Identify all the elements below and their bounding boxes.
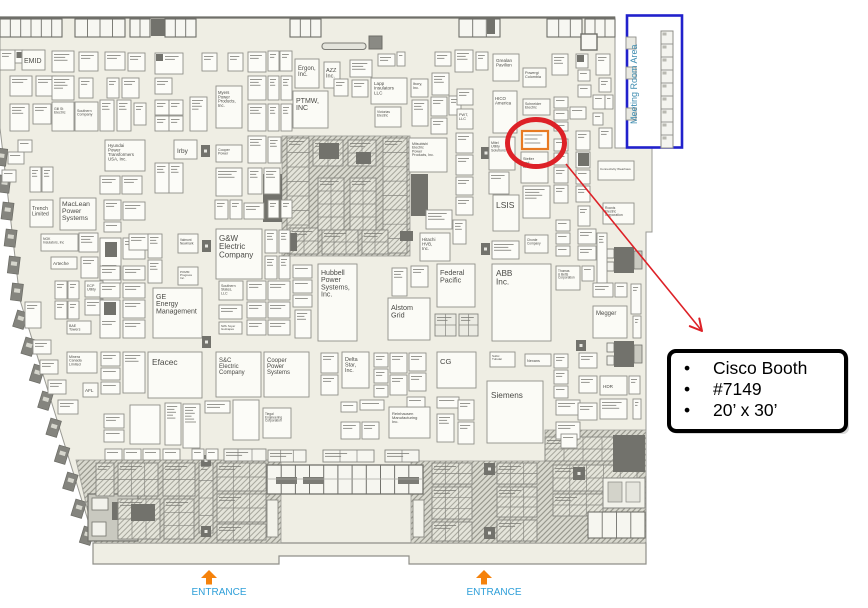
svg-text:HDR: HDR (603, 384, 614, 389)
svg-text:Megger: Megger (596, 311, 616, 317)
svg-text:Meeting Room Area: Meeting Room Area (629, 44, 639, 124)
svg-text:FederalPacific: FederalPacific (440, 268, 465, 284)
svg-text:Connectivity Wearhaus: Connectivity Wearhaus (600, 167, 631, 171)
svg-text:Efacec: Efacec (152, 357, 178, 367)
svg-text:CG: CG (440, 357, 451, 366)
svg-text:Siemens: Siemens (491, 391, 523, 400)
svg-text:AFL: AFL (85, 388, 94, 393)
svg-text:Arteche: Arteche (53, 261, 69, 266)
svg-text:NWL SoyerGodnapes: NWL SoyerGodnapes (221, 324, 235, 331)
svg-text:ENTRANCE: ENTRANCE (466, 587, 521, 598)
svg-text:GrealanPavilion: GrealanPavilion (496, 58, 513, 68)
svg-text:Irby: Irby (177, 148, 189, 155)
svg-text:EMID: EMID (24, 58, 42, 65)
svg-text:MineraCanadaLimited: MineraCanadaLimited (69, 355, 82, 366)
svg-text:ENTRANCE: ENTRANCE (191, 587, 246, 598)
svg-text:SouthernCompany: SouthernCompany (77, 109, 93, 117)
svg-text:TrenchLimited: TrenchLimited (32, 206, 49, 217)
svg-text:LSIS: LSIS (496, 200, 515, 210)
svg-text:Nexans: Nexans (527, 359, 540, 363)
